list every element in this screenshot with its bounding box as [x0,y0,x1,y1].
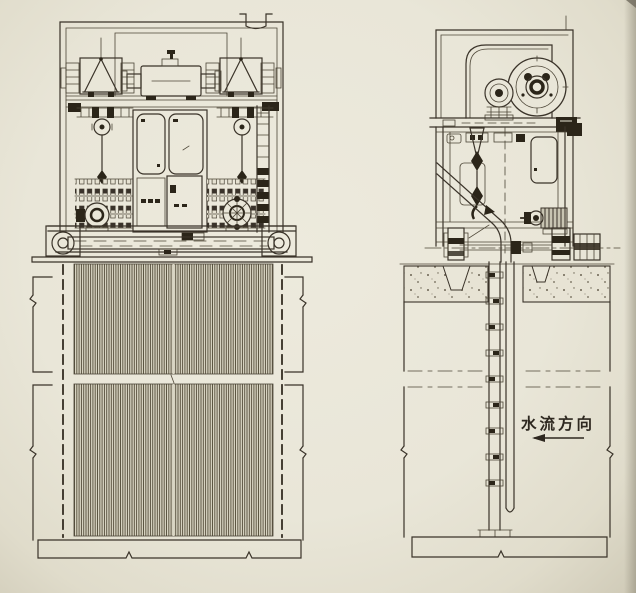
door-panels [133,110,207,240]
access-ladder [257,106,269,232]
side-view: 水流方向 [400,16,620,557]
photo-edge-right [624,0,636,593]
flow-direction-arrow [532,434,584,442]
channel-wall-left [30,277,52,540]
flow-direction-label: 水流方向 [521,414,595,433]
flow-direction-annotation: 水流方向 [521,414,595,442]
lifting-rod-left [77,107,133,184]
deck-line [32,257,312,262]
drawing-page: 水流方向 [0,0,636,593]
rake-ladder [474,262,516,537]
hoist-winch-left [61,38,134,97]
door-panel-side [531,137,557,183]
vent-notch [240,14,272,29]
base-carriage [46,226,296,256]
concrete-deck [400,264,614,302]
channel-sill-side [412,537,607,557]
platform-beam [66,96,277,107]
technical-drawing: 水流方向 [0,0,636,593]
gear-motor [521,208,567,234]
bar-screen-grid [63,264,282,537]
drive-wheel [506,56,568,116]
channel-wall-right [285,277,306,540]
hoist-winch-right [206,38,281,97]
front-view [30,14,312,558]
side-motor [485,79,513,120]
ladder-foot [474,530,516,537]
channel-sill [38,540,301,558]
base-legs-axle [425,228,620,260]
